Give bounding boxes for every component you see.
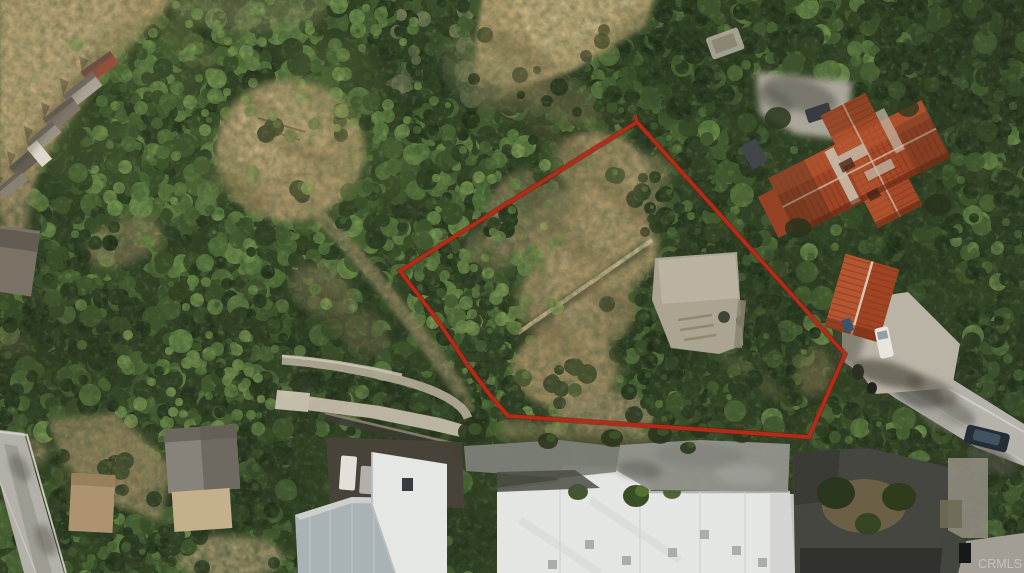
svg-text:CRMLS: CRMLS: [978, 557, 1022, 571]
